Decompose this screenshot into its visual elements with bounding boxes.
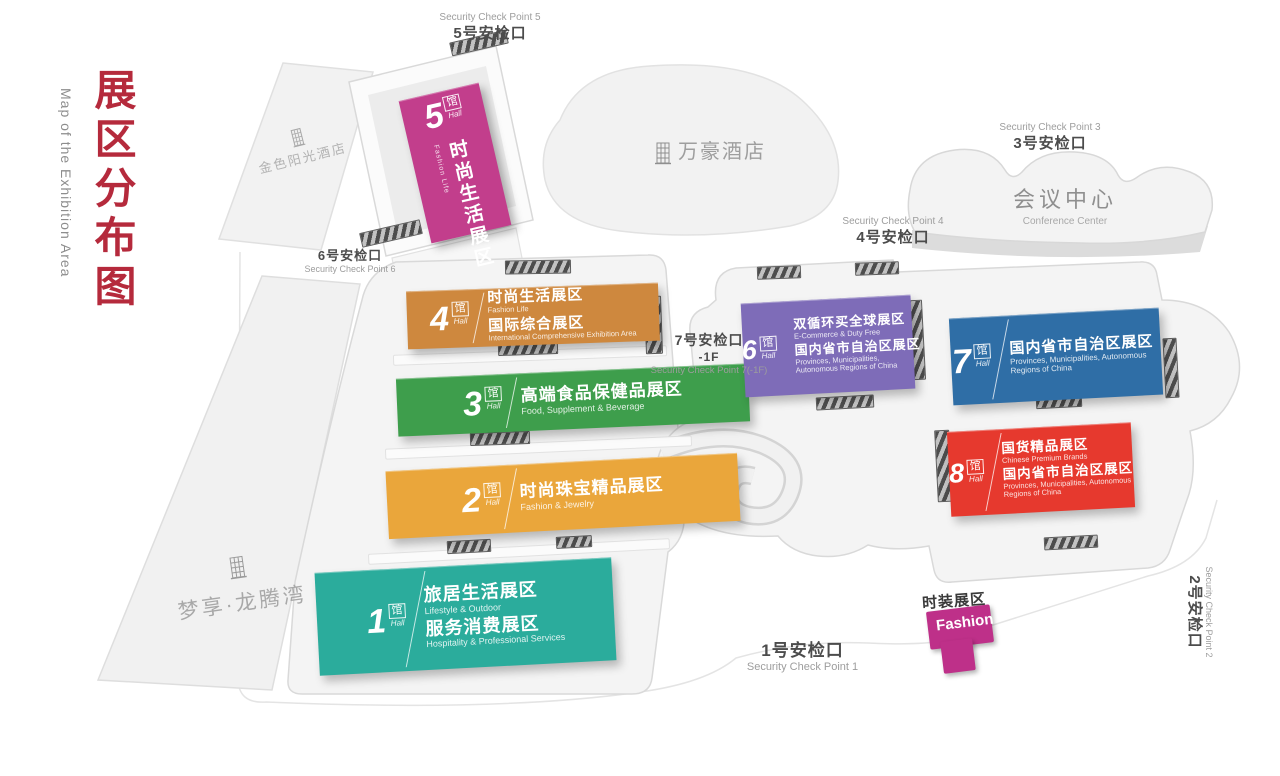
hall-5-number: 5 馆Hall <box>421 93 467 135</box>
marriott-hotel-label: 万豪酒店 <box>630 135 790 167</box>
hall-4: 4 馆Hall 时尚生活展区 Fashion Life 国际综合展区 Inter… <box>406 283 660 350</box>
checkpoint-4-label: Security Check Point 4 4号安检口 <box>828 216 958 247</box>
hall-8: 8 馆Hall 国货精品展区 Chinese Premium Brands 国内… <box>947 422 1135 517</box>
conference-center-label: 会议中心 Conference Center <box>990 182 1140 227</box>
gate-icon <box>556 535 593 549</box>
fashion-zone-label-zh: 时装展区 <box>921 588 986 613</box>
checkpoint-1-label: 1号安检口 Security Check Point 1 <box>735 640 870 675</box>
gate-icon <box>855 261 899 276</box>
building-icon <box>654 141 672 167</box>
building-icon <box>227 554 248 582</box>
gate-icon <box>470 431 530 446</box>
fashion-zone-shape-tail <box>940 638 976 674</box>
checkpoint-7-label: 7号安检口 -1F Security Check Point 7(-1F) <box>650 332 768 376</box>
checkpoint-5-label: Security Check Point 5 5号安检口 <box>420 12 560 43</box>
checkpoint-6-label: 6号安检口 Security Check Point 6 <box>290 248 410 276</box>
hall-7: 7 馆Hall 国内省市自治区展区 Provinces, Municipalit… <box>949 308 1163 406</box>
page-subtitle: Map of the Exhibition Area <box>58 88 74 277</box>
gate-icon <box>505 259 571 274</box>
exhibition-map: 展区分布图 Map of the Exhibition Area 5 馆Hall… <box>0 0 1280 776</box>
gate-icon <box>757 265 801 280</box>
gate-icon <box>447 539 492 554</box>
page-title: 展区分布图 <box>82 68 143 313</box>
checkpoint-3-label: Security Check Point 3 3号安检口 <box>985 122 1115 153</box>
checkpoint-2-label: Security Check Point 2 2号安检口 <box>1184 556 1214 668</box>
hall-1: 1 馆Hall 旅居生活展区 Lifestyle & Outdoor 服务消费展… <box>315 557 617 675</box>
